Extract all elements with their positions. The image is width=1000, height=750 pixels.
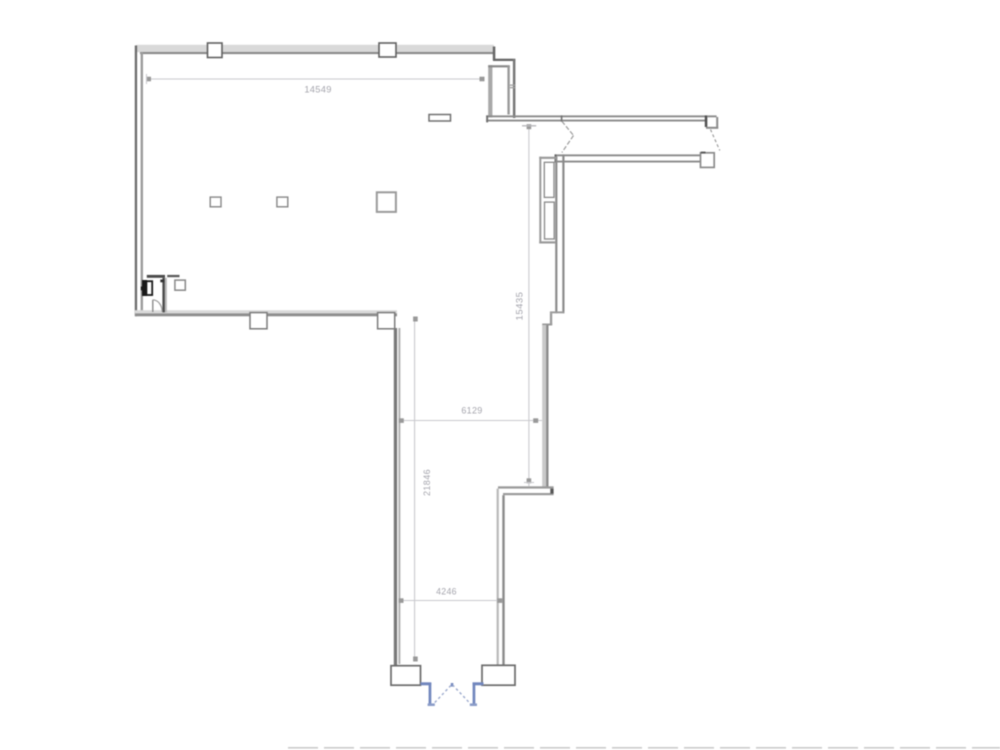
svg-text:15435: 15435 (515, 292, 526, 321)
svg-text:4246: 4246 (436, 587, 457, 597)
svg-text:14549: 14549 (304, 85, 331, 95)
svg-text:21846: 21846 (422, 469, 432, 496)
svg-text:6129: 6129 (461, 406, 482, 416)
